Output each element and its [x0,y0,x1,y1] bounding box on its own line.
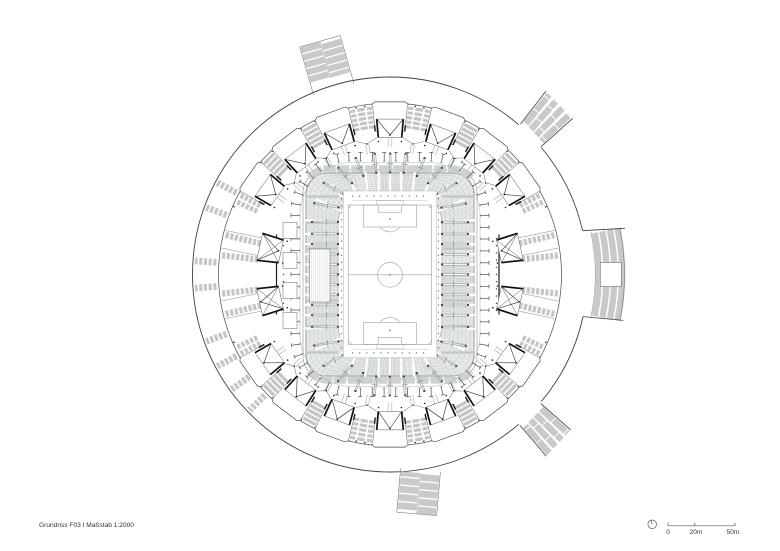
svg-text:0: 0 [666,529,670,536]
svg-text:50m: 50m [727,529,740,536]
svg-text:Grundriss F03 I Maßstab 1:2000: Grundriss F03 I Maßstab 1:2000 [39,522,134,529]
svg-text:20m: 20m [690,529,703,536]
